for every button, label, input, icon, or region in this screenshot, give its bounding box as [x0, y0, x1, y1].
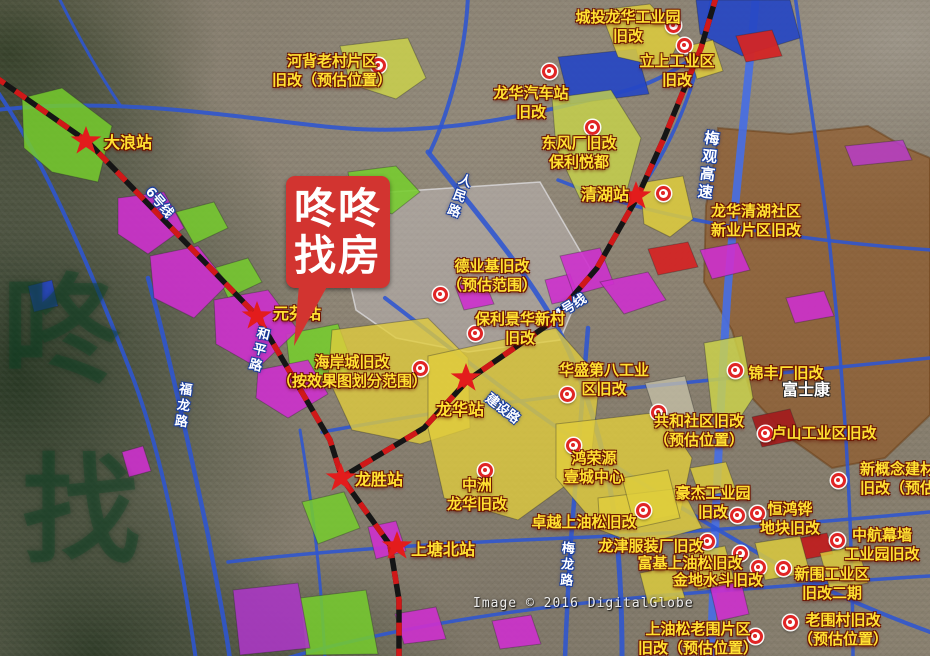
- satellite-watermark: Image © 2016 DigitalGlobe: [473, 596, 694, 611]
- site-label-line: 新业片区旧改: [711, 221, 801, 240]
- brand-watermark-char: 找: [22, 452, 140, 570]
- site-label-line: 保利景华新村: [475, 310, 565, 329]
- site-label-line: 中航幕墙: [844, 526, 919, 545]
- renewal-site-label: 新概念建材旧改（预估位置）: [860, 460, 930, 498]
- renewal-site-label: 新围工业区旧改二期: [794, 565, 869, 603]
- map-pin-icon: [585, 120, 600, 135]
- renewal-site-label: 鸿荣源壹城中心: [564, 449, 624, 487]
- site-label-line: 富士康: [782, 380, 830, 400]
- map-canvas[interactable]: 咚咚 找房 Image © 2016 DigitalGlobe 咚找大浪站元芬站…: [0, 0, 930, 656]
- site-label-line: 华盛第八工业: [559, 361, 649, 380]
- site-label-line: 卢山工业区旧改: [771, 424, 876, 443]
- site-label-line: 旧改（预估位置）: [272, 71, 392, 90]
- renewal-site-label: 保利景华新村旧改: [475, 310, 565, 348]
- site-label-line: 旧改: [575, 27, 680, 46]
- renewal-site-label: 富士康: [782, 380, 830, 400]
- site-label-line: 旧改: [675, 503, 750, 522]
- site-label-line: 旧改二期: [794, 584, 869, 603]
- site-label-line: 保利悦都: [541, 153, 616, 172]
- logo-line2: 找房: [294, 232, 382, 279]
- map-pin-icon: [728, 363, 743, 378]
- site-label-line: 区旧改: [559, 380, 649, 399]
- renewal-site-label: 豪杰工业园旧改: [675, 484, 750, 522]
- site-label-line: 旧改（预估位置）: [860, 479, 930, 498]
- dongdong-zhaofang-logo: 咚咚 找房: [286, 176, 390, 288]
- site-label-line: 旧改: [475, 329, 565, 348]
- site-label-line: 德业基旧改: [447, 257, 537, 276]
- site-label-line: （预估范围）: [447, 276, 537, 295]
- site-label-line: 豪杰工业园: [675, 484, 750, 503]
- renewal-site-label: 城投龙华工业园旧改: [575, 8, 680, 46]
- site-label-line: 壹城中心: [564, 468, 624, 487]
- map-pin-icon: [831, 473, 846, 488]
- station-label: 清湖站: [581, 181, 629, 205]
- map-pin-icon: [776, 561, 791, 576]
- site-label-line: 上油松老围片区: [638, 620, 758, 639]
- renewal-site-label: 龙华汽车站旧改: [493, 84, 568, 122]
- site-label-line: 旧改: [493, 103, 568, 122]
- station-label: 大浪站: [104, 129, 152, 153]
- map-pin-icon: [636, 503, 651, 518]
- site-label-line: 卓越上油松旧改: [531, 513, 636, 532]
- site-label-line: 龙华旧改: [447, 495, 507, 514]
- logo-bubble: 咚咚 找房: [286, 176, 390, 288]
- site-label-line: （按效果图划分范围）: [277, 372, 427, 391]
- site-label-line: 恒鸿铧: [760, 500, 820, 519]
- logo-line1: 咚咚: [294, 185, 382, 232]
- renewal-site-label: 河背老村片区旧改（预估位置）: [272, 52, 392, 90]
- station-label: 龙华站: [436, 396, 484, 420]
- site-label-line: 中洲: [447, 476, 507, 495]
- renewal-site-label: 金地水斗旧改: [673, 571, 763, 590]
- renewal-site-label: 卓越上油松旧改: [531, 513, 636, 532]
- site-label-line: 海岸城旧改: [277, 353, 427, 372]
- map-pin-icon: [830, 533, 845, 548]
- renewal-site-label: 立上工业区旧改: [639, 52, 714, 90]
- site-label-line: 河背老村片区: [272, 52, 392, 71]
- renewal-site-label: 共和社区旧改（预估位置）: [654, 412, 744, 450]
- station-label: 上塘北站: [411, 536, 475, 560]
- site-label-line: 工业园旧改: [844, 545, 919, 564]
- renewal-site-label: 德业基旧改（预估范围）: [447, 257, 537, 295]
- site-label-line: 城投龙华工业园: [575, 8, 680, 27]
- map-pin-icon: [758, 426, 773, 441]
- station-label: 龙胜站: [355, 466, 403, 490]
- renewal-site-label: 中洲龙华旧改: [447, 476, 507, 514]
- site-label-line: 金地水斗旧改: [673, 571, 763, 590]
- renewal-site-label: 老围村旧改（预估位置）: [798, 611, 888, 649]
- renewal-site-label: 上油松老围片区旧改（预估位置）: [638, 620, 758, 656]
- site-label-line: 共和社区旧改: [654, 412, 744, 431]
- map-pin-icon: [656, 186, 671, 201]
- brand-watermark-char: 咚: [2, 272, 120, 390]
- site-label-line: 立上工业区: [639, 52, 714, 71]
- renewal-site-label: 东风厂旧改保利悦都: [541, 134, 616, 172]
- site-label-line: 新概念建材: [860, 460, 930, 479]
- renewal-site-label: 中航幕墙工业园旧改: [844, 526, 919, 564]
- site-label-line: 东风厂旧改: [541, 134, 616, 153]
- site-label-line: 旧改: [639, 71, 714, 90]
- renewal-site-label: 华盛第八工业区旧改: [559, 361, 649, 399]
- site-label-line: 地块旧改: [760, 519, 820, 538]
- site-label-line: 龙华汽车站: [493, 84, 568, 103]
- road-label: 梅龙路: [555, 541, 576, 590]
- site-label-line: 旧改（预估位置）: [638, 639, 758, 656]
- renewal-site-label: 海岸城旧改（按效果图划分范围）: [277, 353, 427, 391]
- map-pin-icon: [433, 287, 448, 302]
- site-label-line: 龙华清湖社区: [711, 202, 801, 221]
- site-label-line: 新围工业区: [794, 565, 869, 584]
- site-label-line: 鸿荣源: [564, 449, 624, 468]
- map-pin-icon: [783, 615, 798, 630]
- renewal-site-label: 恒鸿铧地块旧改: [760, 500, 820, 538]
- map-pin-icon: [542, 64, 557, 79]
- site-label-line: （预估位置）: [798, 630, 888, 649]
- renewal-site-label: 龙华清湖社区新业片区旧改: [711, 202, 801, 240]
- renewal-site-label: 卢山工业区旧改: [771, 424, 876, 443]
- site-label-line: （预估位置）: [654, 431, 744, 450]
- site-label-line: 老围村旧改: [798, 611, 888, 630]
